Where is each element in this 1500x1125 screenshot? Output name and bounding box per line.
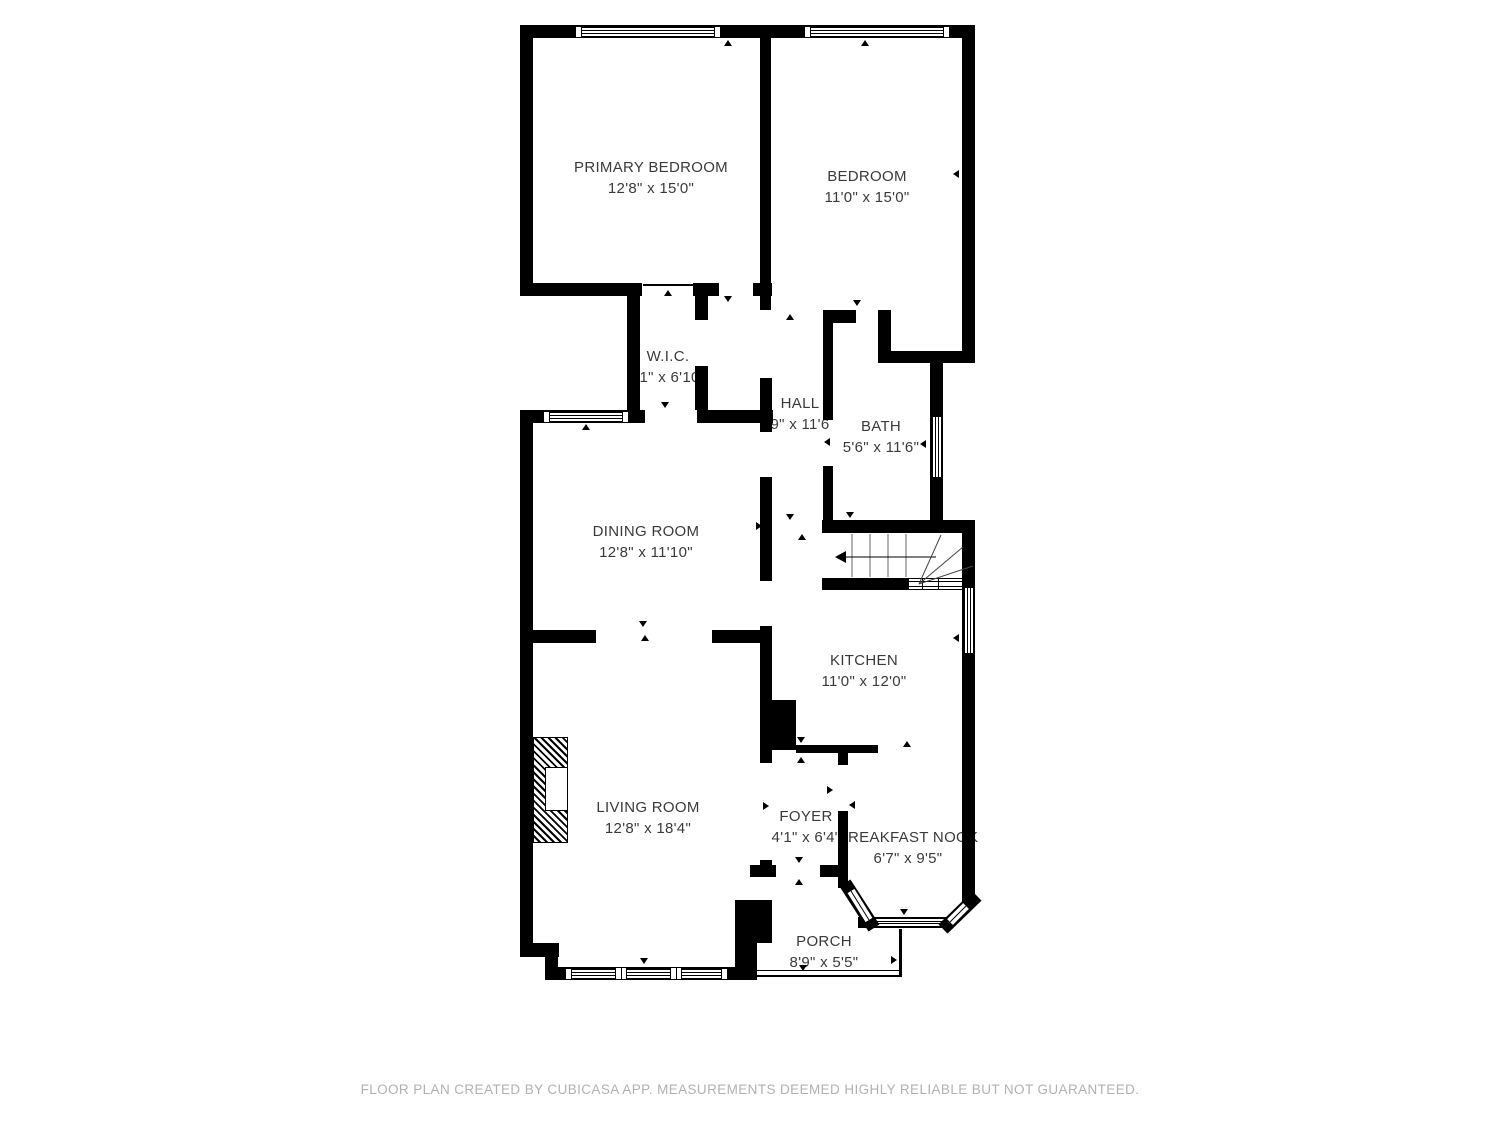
door-tick-icon — [640, 958, 648, 964]
door-tick-icon — [799, 965, 807, 971]
door-tick-icon — [903, 741, 911, 747]
door-tick-icon — [953, 170, 959, 178]
door-tick-icon — [798, 534, 806, 540]
door-tick-icon — [797, 757, 805, 763]
door-tick-icon — [724, 296, 732, 302]
staircase — [0, 0, 1500, 1125]
door-tick-icon — [824, 438, 830, 446]
door-tick-icon — [849, 801, 855, 809]
door-tick-icon — [797, 737, 805, 743]
door-tick-icon — [724, 40, 732, 46]
door-tick-icon — [795, 879, 803, 885]
door-tick-icon — [843, 315, 851, 321]
door-tick-icon — [582, 424, 590, 430]
bay-window-left-diagonal — [845, 883, 874, 928]
door-tick-icon — [524, 520, 530, 528]
door-tick-icon — [664, 290, 672, 296]
door-tick-icon — [891, 956, 897, 964]
door-tick-icon — [763, 802, 769, 810]
floor-plan: PRIMARY BEDROOM 12'8" x 15'0" BEDROOM 11… — [0, 0, 1500, 1125]
door-tick-icon — [522, 156, 528, 164]
door-tick-icon — [786, 314, 794, 320]
door-tick-icon — [827, 786, 833, 794]
door-tick-icon — [762, 637, 768, 645]
bay-window-right-diagonal — [943, 896, 977, 929]
door-tick-icon — [661, 402, 669, 408]
door-tick-icon — [838, 527, 846, 533]
door-tick-icon — [744, 956, 750, 964]
door-tick-icon — [639, 621, 647, 627]
door-tick-icon — [795, 857, 803, 863]
door-tick-icon — [861, 40, 869, 46]
door-tick-icon — [846, 512, 854, 518]
door-tick-icon — [900, 909, 908, 915]
door-tick-icon — [641, 635, 649, 641]
door-tick-icon — [953, 634, 959, 642]
door-tick-icon — [756, 522, 762, 530]
door-tick-icon — [853, 300, 861, 306]
door-tick-icon — [786, 514, 794, 520]
door-tick-icon — [522, 748, 528, 756]
door-tick-icon — [920, 440, 926, 448]
